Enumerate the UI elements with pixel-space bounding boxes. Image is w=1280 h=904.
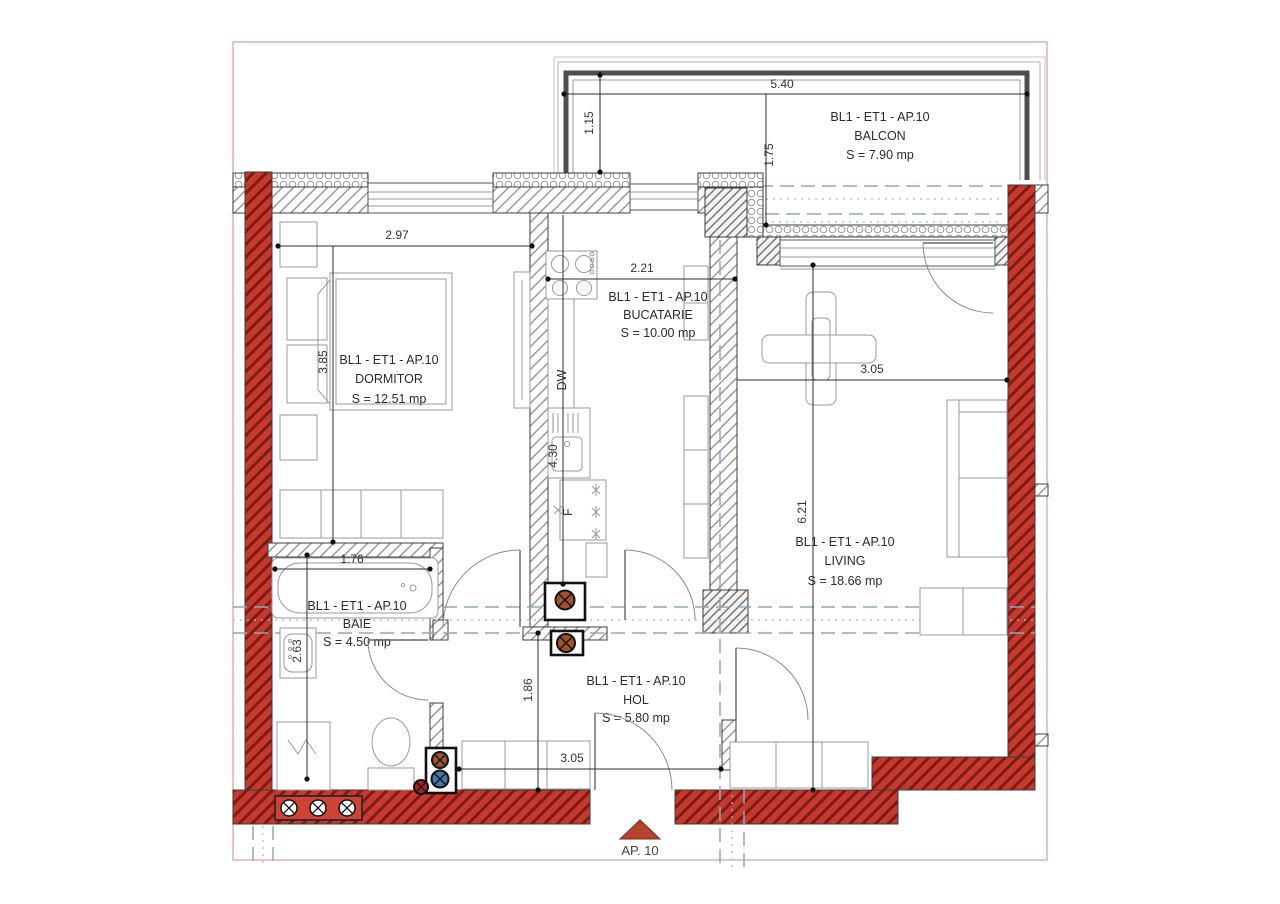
svg-text:6.21: 6.21 — [795, 500, 809, 524]
dormitor-label-code: BL1 - ET1 - AP.10 — [339, 353, 438, 367]
nightstand — [280, 222, 317, 267]
wall-right — [1008, 185, 1035, 757]
svg-text:1.15: 1.15 — [582, 111, 596, 135]
wall-dormitor-kitchen — [530, 213, 548, 627]
wall-left — [245, 172, 272, 802]
drawing-frame — [233, 42, 1047, 860]
balcony-label: BL1 - ET1 - AP.10 BALCON S = 7.90 mp — [830, 110, 929, 162]
svg-text:1.75: 1.75 — [762, 143, 776, 167]
fridge: F — [554, 480, 606, 540]
svg-text:1.76: 1.76 — [340, 552, 364, 566]
nightstand — [280, 415, 317, 460]
dormitor-label-name: DORMITOR — [355, 372, 423, 386]
balcony-parapet — [566, 73, 1027, 180]
living-label-code: BL1 - ET1 - AP.10 — [795, 535, 894, 549]
svg-text:5.40: 5.40 — [770, 77, 794, 91]
entrance-arrow-icon — [620, 820, 660, 839]
dishwasher-label: DW — [555, 369, 569, 390]
baie-label: BL1 - ET1 - AP.10 BAIE S = 4.50 mp — [307, 599, 406, 649]
baie-label-name: BAIE — [343, 617, 372, 631]
riser-box — [275, 796, 362, 820]
floor-plan-drawing: BL1 - ET1 - AP.10 BALCON S = 7.90 mp — [0, 0, 1280, 904]
column-kitchen-living — [705, 188, 747, 237]
baie-door — [368, 640, 428, 700]
dishwasher: DW — [548, 299, 574, 408]
dining-table — [762, 292, 876, 405]
wardrobe — [280, 490, 443, 538]
bucatarie-label-name: BUCATARIE — [623, 308, 693, 322]
svg-text:1.86: 1.86 — [521, 678, 535, 702]
wall-bottom-right — [872, 757, 1035, 790]
svg-text:3.85: 3.85 — [316, 350, 330, 374]
window-kitchen — [630, 184, 698, 210]
dormitor-label-area: S = 12.51 mp — [352, 392, 427, 406]
svg-text:4.30: 4.30 — [546, 444, 560, 468]
dormitor-door — [443, 550, 520, 627]
wall-bottom-mid — [675, 790, 898, 824]
kitchen-counter — [586, 543, 607, 577]
baie-label-code: BL1 - ET1 - AP.10 — [307, 599, 406, 613]
radiator — [514, 272, 530, 408]
dim-living-width: 3.05 — [737, 362, 1010, 383]
room-hol: BL1 - ET1 - AP.10 HOL S = 5.80 mp — [462, 674, 686, 789]
balcony-label-area: S = 7.90 mp — [846, 148, 914, 162]
hol-label-name: HOL — [623, 693, 649, 707]
living-label-name: LIVING — [825, 554, 866, 568]
living-label: BL1 - ET1 - AP.10 LIVING S = 18.66 mp — [795, 535, 894, 588]
pillow — [287, 278, 327, 340]
balcony-label-name: BALCON — [854, 129, 905, 143]
bucatarie-label-code: BL1 - ET1 - AP.10 — [608, 290, 707, 304]
svg-text:2.21: 2.21 — [630, 261, 654, 275]
window-dormitor — [368, 183, 493, 213]
dim-balcony-depth-left: 1.15 — [582, 72, 603, 174]
washing-machine — [277, 722, 330, 790]
kitchen-door — [625, 550, 695, 620]
pipes-box — [414, 748, 456, 794]
svg-text:3.05: 3.05 — [860, 362, 884, 376]
hol-label-code: BL1 - ET1 - AP.10 — [586, 674, 685, 688]
stove — [546, 251, 597, 299]
toilet — [368, 718, 414, 790]
svg-text:2.63: 2.63 — [290, 639, 304, 663]
entrance-label: AP. 10 — [621, 843, 658, 858]
gas-box-lower — [551, 631, 583, 655]
room-baie: BL1 - ET1 - AP.10 BAIE S = 4.50 mp — [272, 558, 456, 794]
hol-label: BL1 - ET1 - AP.10 HOL S = 5.80 mp — [586, 674, 685, 725]
entrance-marker: AP. 10 — [620, 820, 660, 858]
living-label-area: S = 18.66 mp — [808, 574, 883, 588]
gas-box-upper — [545, 583, 585, 620]
floor-plan-page: BL1 - ET1 - AP.10 BALCON S = 7.90 mp — [0, 0, 1280, 904]
tv-cabinet — [730, 742, 868, 788]
room-bucatarie: DW F — [545, 251, 708, 655]
baie-label-area: S = 4.50 mp — [323, 635, 391, 649]
hol-label-area: S = 5.80 mp — [602, 711, 670, 725]
svg-text:3.05: 3.05 — [560, 751, 584, 765]
dim-balcony-depth-right: 1.75 — [762, 94, 776, 228]
balcony-label-code: BL1 - ET1 - AP.10 — [830, 110, 929, 124]
room-dormitor: BL1 - ET1 - AP.10 DORMITOR S = 12.51 mp — [280, 222, 530, 538]
bucatarie-label-area: S = 10.00 mp — [621, 326, 696, 340]
exterior-wall-top — [233, 173, 1048, 269]
svg-text:2.97: 2.97 — [385, 228, 409, 242]
wall-kitchen-living — [710, 237, 737, 590]
living-door — [736, 648, 808, 720]
bucatarie-label: BL1 - ET1 - AP.10 BUCATARIE S = 10.00 mp — [608, 290, 707, 340]
bed — [287, 273, 452, 410]
shoe-cabinet — [462, 741, 590, 789]
sofa — [920, 400, 1007, 635]
